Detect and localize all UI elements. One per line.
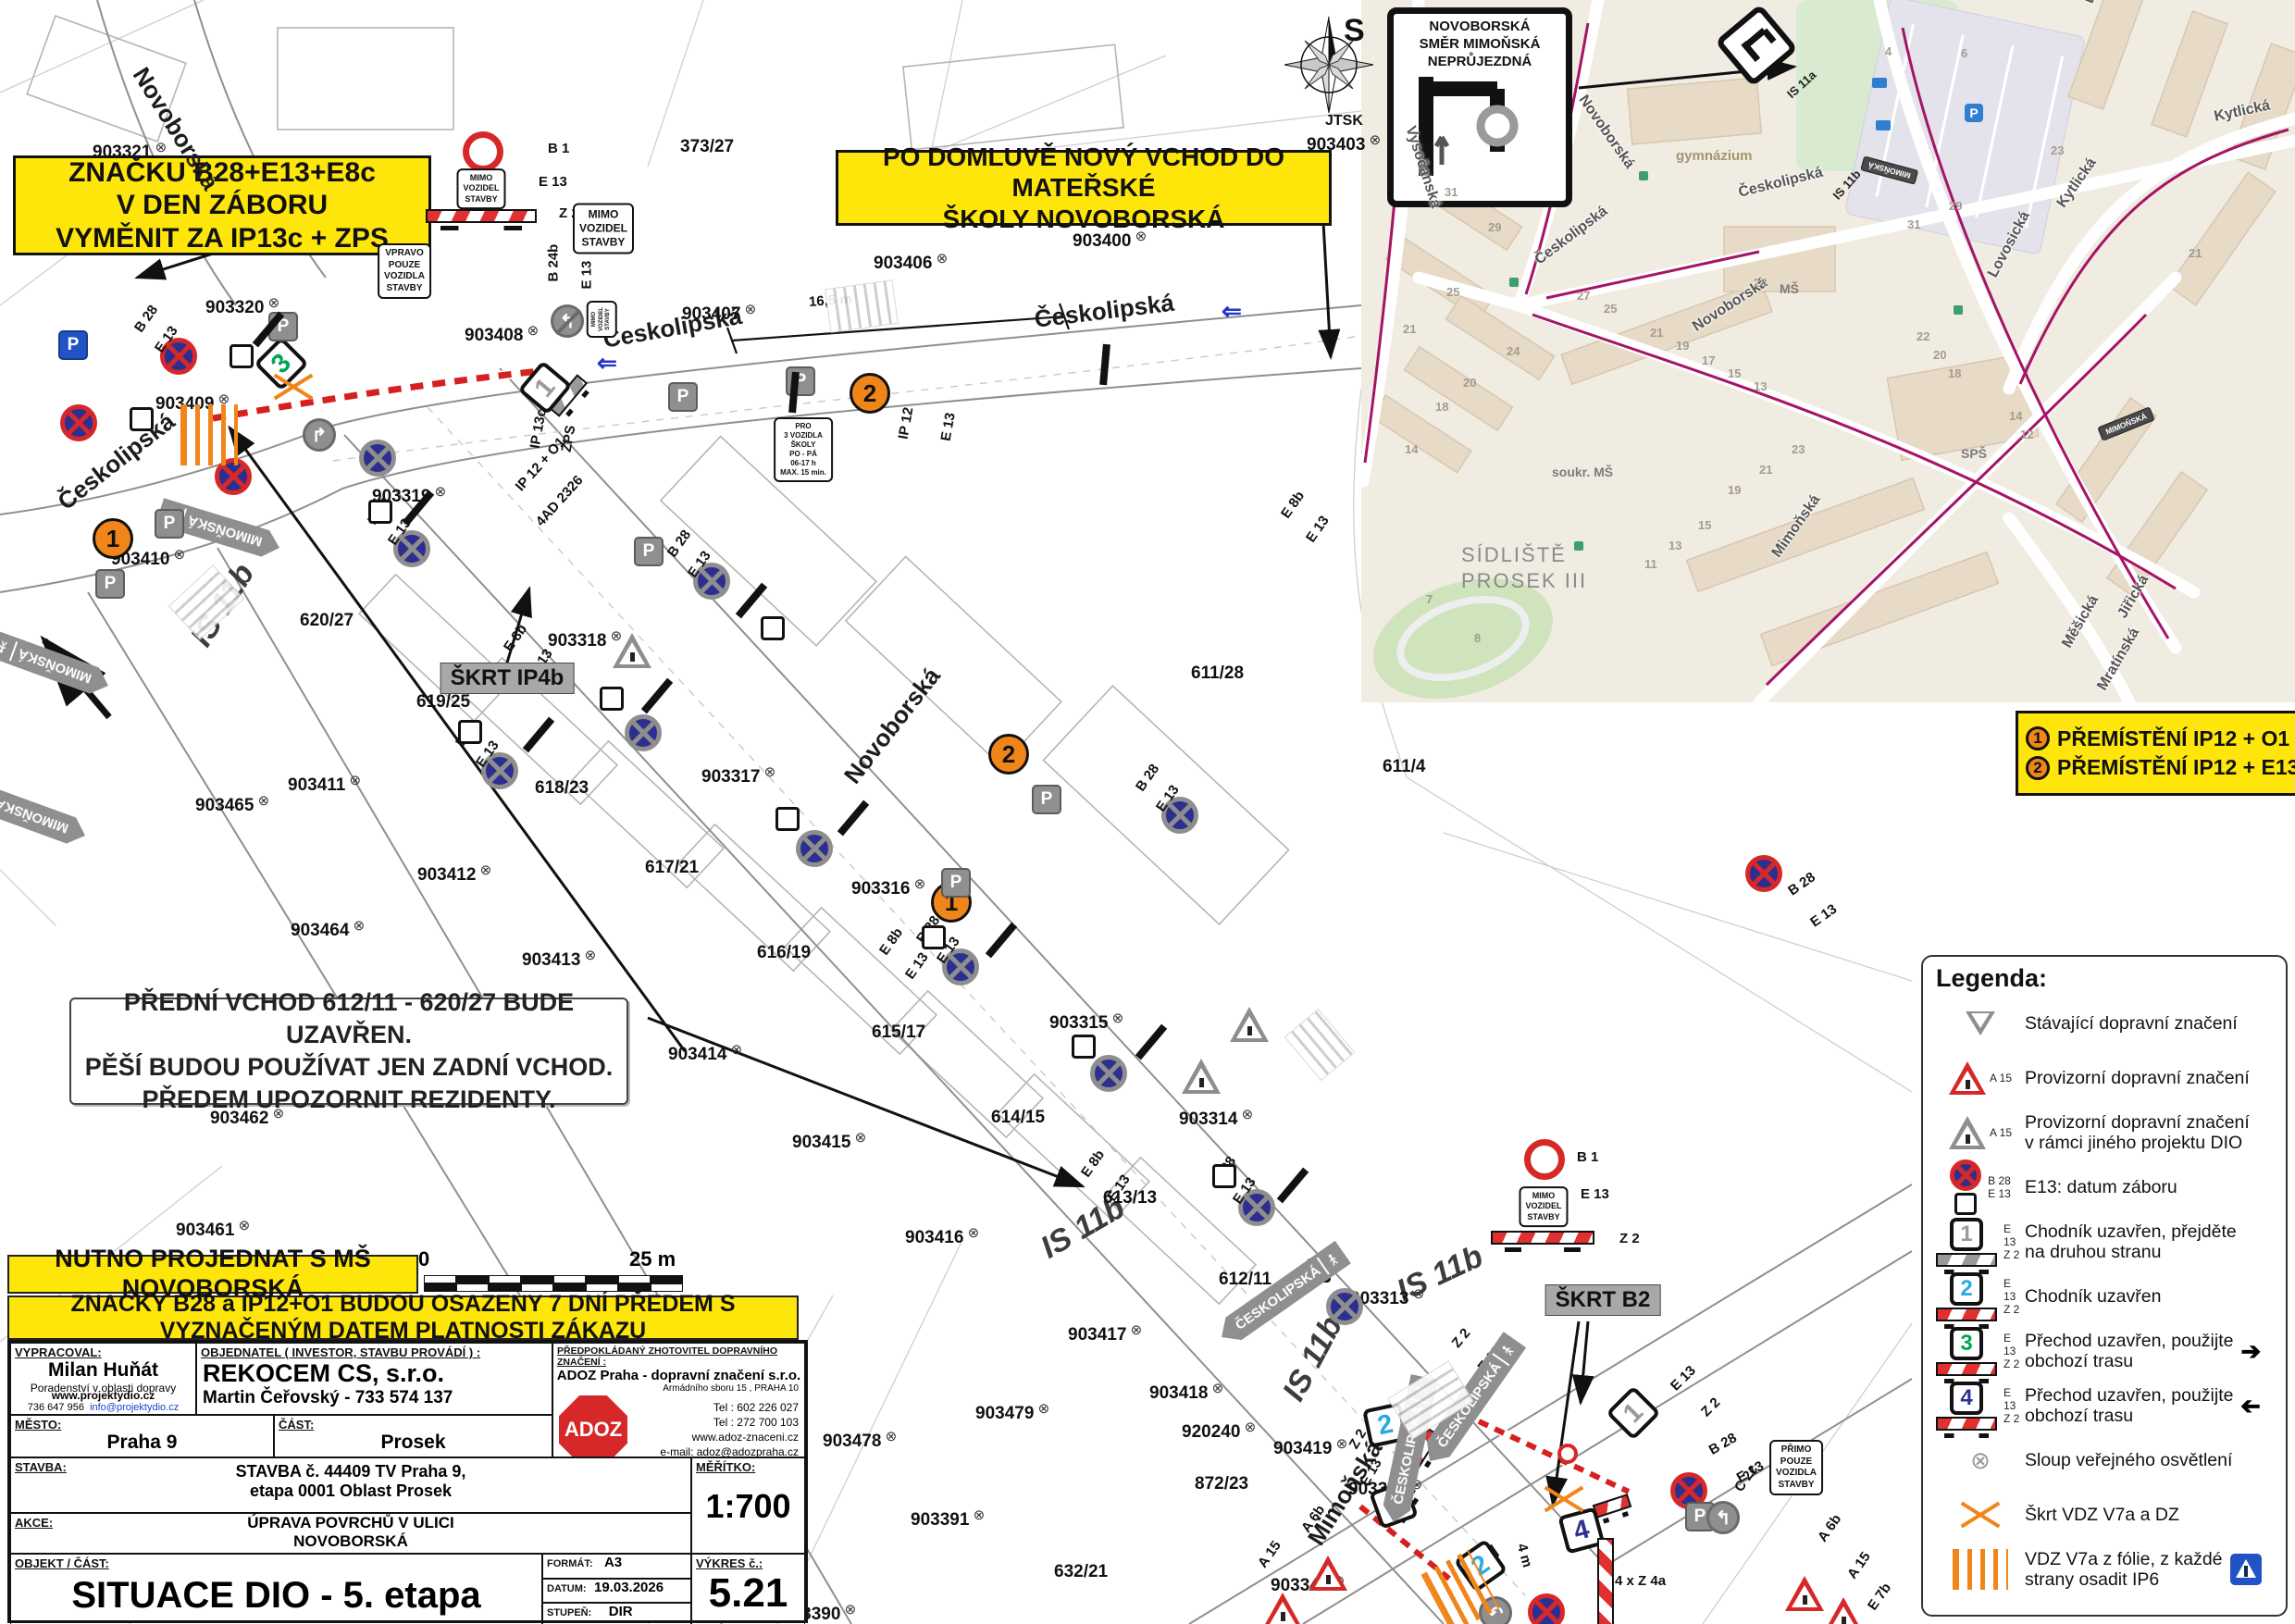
legend-text: Přechod uzavřen, použijte obchozí trasu — [2025, 1331, 2233, 1372]
parking-sign: P — [1032, 785, 1061, 814]
no-stopping-sign — [625, 714, 662, 751]
parcel-label: 903412 ⊗ — [417, 862, 491, 886]
author-label: VYPRACOVAL: — [11, 1344, 195, 1359]
parcel-label: 632/21 — [1054, 1562, 1108, 1582]
sign-code-label: E 13 — [1303, 513, 1333, 545]
legend-text: Chodník uzavřen — [2025, 1286, 2161, 1307]
text-plate-sign: MIMO VOZIDEL STAVBY — [456, 168, 505, 209]
parcel-label: 903411 ⊗ — [288, 772, 361, 796]
v7a-foil-icon — [1936, 1545, 2025, 1593]
sign-code-label: B 1 — [548, 141, 569, 156]
sign-post-bar — [641, 678, 673, 714]
no-stopping-sign — [60, 404, 97, 441]
legend-row: A 15 Provizorní dopravní značení v rámci… — [1936, 1109, 2275, 1157]
parcel-label: 903478 ⊗ — [823, 1428, 897, 1452]
legend-text: Provizorní dopravní značení — [2025, 1068, 2250, 1088]
sign-code-label: B 28 — [1133, 762, 1162, 795]
sign-code-label: B 24b — [546, 244, 562, 282]
street-label: IS 11b — [1276, 1310, 1350, 1407]
no-stopping-sign — [796, 830, 833, 867]
author-email-link[interactable]: info@projektydio.cz — [90, 1402, 179, 1413]
legend-row: 2 E 13 Z 2 Chodník uzavřen — [1936, 1272, 2275, 1320]
parcel-label: 619/25 — [416, 692, 470, 713]
legend-tag: A 15 — [1990, 1072, 2012, 1085]
text-plate-sign: MIMO VOZIDEL STAVBY — [1519, 1186, 1568, 1227]
numbered-point-sign: 1 — [1606, 1385, 1660, 1440]
text-plate-sign: PŘIMO POUZE VOZIDLA STAVBY — [1769, 1440, 1823, 1495]
author-phone-email: 736 647 956 info@projektydio.cz — [10, 1402, 196, 1413]
stage-cell: STUPEŇ: DIR — [542, 1603, 691, 1624]
parcel-label: 903391 ⊗ — [911, 1506, 985, 1531]
z2-barrier — [426, 209, 537, 223]
legend-row: A 15 Provizorní dopravní značení — [1936, 1054, 2275, 1102]
turn-sign: ↰ — [551, 304, 584, 338]
legend-row: VDZ V7a z fólie, z každé strany osadit I… — [1936, 1545, 2275, 1593]
stage-label: STUPEŇ: — [543, 1605, 591, 1618]
parking-sign: P — [58, 330, 88, 360]
sign-code-label: E 13 — [1807, 901, 1840, 931]
action-line2: NOVOBORSKÁ — [11, 1532, 690, 1551]
no-stopping-sign — [359, 440, 396, 477]
legend-tag: Z 2 — [2003, 1412, 2025, 1425]
sign-code-label: E 8b — [1078, 1147, 1108, 1181]
parcel-label: 903419 ⊗ — [1273, 1435, 1347, 1459]
sign-code-label: E 13 — [902, 949, 932, 982]
one-way-arrow: ⇐ — [597, 349, 617, 378]
adoz-logo: ADOZ — [559, 1395, 627, 1457]
parcel-label: 615/17 — [872, 1023, 925, 1043]
sign-code-label: IP 12 — [896, 406, 917, 440]
sign-post-bar — [736, 583, 767, 619]
parcel-label: 903318 ⊗ — [548, 627, 622, 651]
legend-text: E13: datum záboru — [2025, 1177, 2177, 1197]
contractor-cell: PŘEDPOKLÁDANÝ ZHOTOVITEL DOPRAVNÍHO ZNAČ… — [552, 1343, 805, 1457]
sign-code-label: A 6b — [1815, 1511, 1844, 1544]
district-cell: ČÁST: Prosek — [274, 1415, 552, 1457]
sign-code-label: A 15 — [1255, 1538, 1284, 1570]
parcel-label: 920240 ⊗ — [1182, 1419, 1256, 1443]
legend-tag: A 15 — [1990, 1126, 2012, 1139]
sign-code-label: E 7b — [1865, 1581, 1894, 1614]
parcel-label: 903461 ⊗ — [176, 1217, 250, 1241]
route-arrow-right: ➔ — [2240, 1337, 2261, 1366]
sign-code-label: B 28 — [1785, 869, 1818, 899]
action-line1: ÚPRAVA POVRCHŮ V ULICI — [11, 1514, 690, 1532]
text-plate-sign: MIMO VOZIDEL STAVBY — [573, 204, 634, 254]
sidewalk-closed-cross-icon: 1 E 13 Z 2 — [1936, 1218, 2025, 1266]
sign-code-label: Z 2 — [1619, 1231, 1640, 1246]
sign-code-label: 4AD 2326 — [533, 473, 587, 530]
roadworks-warning-sign — [1309, 1556, 1347, 1591]
legend-row: Škrt VDZ V7a a DZ — [1936, 1491, 2275, 1539]
sign-code-label: A 15 — [1844, 1549, 1874, 1581]
route-arrow-left: ➔ — [2240, 1392, 2261, 1420]
sidewalk-closed-icon: 2 E 13 Z 2 — [1936, 1272, 2025, 1320]
date-label: DATUM: — [543, 1581, 587, 1594]
sign-post-bar — [523, 717, 554, 753]
parcel-label: 903413 ⊗ — [522, 947, 596, 971]
legend-text: VDZ V7a z fólie, z každé strany osadit I… — [2025, 1549, 2223, 1591]
sign-post-bar — [837, 800, 869, 837]
contractor-tel1: Tel : 602 226 027 — [633, 1400, 799, 1415]
action-label: AKCE: — [11, 1514, 53, 1530]
sign-code-label: E 13 — [539, 174, 567, 190]
one-way-arrow: ⇐ — [1222, 297, 1242, 326]
sign-code-label: E 8b — [1278, 489, 1308, 522]
parcel-label: 903317 ⊗ — [701, 763, 775, 787]
legend-tag: E 13 — [2003, 1386, 2025, 1412]
relocation-point-badge: 2 — [988, 734, 1029, 775]
parcel-label: 903417 ⊗ — [1068, 1321, 1142, 1345]
legend-row: 4 E 13 Z 2 Přechod uzavřen, použijte obc… — [1936, 1382, 2275, 1430]
parcel-label: 903418 ⊗ — [1149, 1380, 1223, 1404]
contractor-web-link[interactable]: www.adoz-znaceni.cz — [633, 1430, 799, 1444]
format-value: A3 — [604, 1555, 622, 1570]
parcel-label: 872/23 — [1195, 1474, 1248, 1494]
sign-code-label: B 1 — [1577, 1149, 1598, 1165]
existing-sign-icon — [1936, 999, 2025, 1048]
roadworks-warning-sign — [1824, 1597, 1863, 1624]
parcel-label: 903414 ⊗ — [668, 1041, 742, 1065]
contractor-tel2: Tel : 272 700 103 — [633, 1415, 799, 1430]
sign-code-label: 4 x Z 4a — [1615, 1573, 1666, 1589]
relocation-point-badge: 1 — [93, 518, 133, 559]
contractor-contacts: Tel : 602 226 027 Tel : 272 700 103 www.… — [633, 1400, 799, 1457]
street-direction-sign: MIMOŇSKÁ — [0, 630, 113, 699]
legend-tag: E 13 — [2003, 1332, 2025, 1357]
parcel-label: 903464 ⊗ — [291, 917, 365, 941]
e13-plate — [922, 925, 946, 949]
drawing-number-cell: VÝKRES č.: 5.21 — [691, 1554, 805, 1624]
parcel-label: 903407 ⊗ — [682, 301, 756, 325]
parcel-label: 903408 ⊗ — [465, 322, 539, 346]
city-cell: MĚSTO: Praha 9 — [10, 1415, 274, 1457]
author-phone: 736 647 956 — [28, 1402, 84, 1413]
z2-barrier — [1593, 1494, 1632, 1519]
sign-code-label: IP 13c — [527, 408, 550, 450]
district-value: Prosek — [275, 1432, 552, 1454]
no-stopping-sign — [1745, 855, 1782, 892]
strike-marking-icon — [1936, 1491, 2025, 1539]
z2-barrier — [1491, 1231, 1594, 1245]
client-name: REKOCEM CS, s.r.o. — [197, 1359, 552, 1388]
e13-plate — [1072, 1035, 1096, 1059]
parcel-label: 903400 ⊗ — [1073, 228, 1147, 252]
parcel-label: 903462 ⊗ — [210, 1105, 284, 1129]
parking-sign: P — [95, 569, 125, 599]
city-label: MĚSTO: — [11, 1416, 273, 1432]
z4b-guide-board — [1597, 1538, 1614, 1624]
sign-code-label: B 28 — [664, 527, 694, 561]
sign-code-label: B 28 — [1706, 1430, 1740, 1458]
drawing-number-value: 5.21 — [692, 1570, 804, 1617]
parking-sign: P — [668, 382, 698, 412]
parcel-label: 903403 ⊗ — [1307, 131, 1381, 155]
legend-text: Provizorní dopravní značení v rámci jiné… — [2025, 1112, 2250, 1154]
temporary-sign-icon: A 15 — [1936, 1054, 2025, 1102]
no-stopping-sign — [1326, 1288, 1363, 1325]
legend-tag: E 13 — [2003, 1222, 2025, 1248]
parcel-label: 612/11 — [1219, 1270, 1272, 1290]
parcel-label: 614/15 — [991, 1108, 1045, 1128]
contractor-address: Armádního sboru 15 , PRAHA 10 — [553, 1383, 804, 1394]
strike-mark — [273, 371, 314, 403]
legend-tag: Z 2 — [2003, 1248, 2025, 1261]
parcel-label: 903416 ⊗ — [905, 1224, 979, 1248]
date-cell: DATUM: 19.03.2026 — [542, 1579, 691, 1603]
parcel-label: 618/23 — [535, 778, 589, 799]
sign-code-label: E 8b — [501, 622, 530, 655]
object-cell: OBJEKT / ČÁST: SITUACE DIO - 5. etapa — [10, 1554, 542, 1624]
sign-post-bar — [1135, 1024, 1167, 1060]
legend-tag: E 13 — [2003, 1277, 2025, 1303]
parcel-label: 903314 ⊗ — [1179, 1106, 1253, 1130]
relocation-point-badge: 2 — [850, 373, 890, 414]
parking-sign: P — [155, 509, 184, 539]
scale-label: MĚŘÍTKO: — [692, 1458, 804, 1474]
roadworks-warning-sign — [1230, 1007, 1269, 1042]
legend-row: B 28 E 13 E13: datum záboru — [1936, 1163, 2275, 1211]
legend-row: Stávající dopravní značení — [1936, 999, 2275, 1048]
legend-tag: E 13 — [1988, 1187, 2011, 1200]
e13-plate — [761, 616, 785, 640]
parcel-label: 903406 ⊗ — [874, 250, 948, 274]
sign-code-label: 4 m — [1514, 1542, 1535, 1568]
street-label: Novoborská — [838, 663, 947, 789]
no-stopping-sign — [1090, 1055, 1127, 1092]
client-cell: OBJEDNATEL ( INVESTOR, STAVBU PROVÁDÍ ) … — [196, 1343, 552, 1415]
object-value: SITUACE DIO - 5. etapa — [11, 1575, 541, 1617]
format-cell: FORMÁT: A3 — [542, 1554, 691, 1579]
scale-value: 1:700 — [692, 1487, 804, 1526]
sign-code-label: Z 2 — [1698, 1395, 1723, 1419]
no-entry-sign — [463, 131, 503, 172]
e13-plate — [130, 407, 154, 431]
e13-plate — [229, 344, 254, 368]
e13-plate — [368, 500, 392, 524]
sign-code-label: B 28 — [131, 303, 161, 336]
legend-title: Legenda: — [1936, 964, 2275, 993]
parcel-label: 903321 ⊗ — [93, 139, 167, 163]
legend-tag: Z 2 — [2003, 1357, 2025, 1370]
v7a-foil-crossing — [180, 404, 238, 465]
strike-mark — [1544, 1483, 1584, 1515]
sign-code-label: E 13 — [1668, 1363, 1699, 1395]
e13-plate — [775, 807, 800, 831]
action-cell: AKCE: ÚPRAVA POVRCHŮ V ULICI NOVOBORSKÁ — [10, 1513, 691, 1554]
object-label: OBJEKT / ČÁST: — [11, 1555, 109, 1570]
zebra-crossing — [1284, 1009, 1356, 1081]
sign-post-bar — [986, 923, 1017, 959]
no-stopping-sign — [1528, 1593, 1565, 1624]
format-label: FORMÁT: — [543, 1556, 593, 1569]
scale-cell: MĚŘÍTKO: 1:700 — [691, 1457, 805, 1554]
parcel-label: 903415 ⊗ — [792, 1129, 866, 1153]
sign-code-label: E 13 — [1581, 1186, 1609, 1202]
parcel-label: 617/21 — [645, 858, 699, 878]
stage-value: DIR — [609, 1604, 633, 1619]
text-plate-sign: VPRAVO POUZE VOZIDLA STAVBY — [378, 243, 431, 299]
date-value: 19.03.2026 — [594, 1580, 664, 1595]
sign-code-label: Z 2 — [1448, 1325, 1473, 1351]
parcel-label: 611/28 — [1191, 663, 1244, 684]
strike-instruction-box: ŠKRT IP4b — [440, 663, 575, 694]
e13-plate — [1212, 1164, 1236, 1188]
legend-tag: B 28 — [1988, 1174, 2011, 1187]
roadworks-warning-sign — [1263, 1593, 1302, 1624]
title-block: VYPRACOVAL: Milan Huňát Poradenství v ob… — [7, 1340, 808, 1623]
street-label: Novoborská — [127, 62, 225, 195]
contractor-email-link[interactable]: e-mail: adoz@adozpraha.cz — [633, 1444, 799, 1457]
strike-instruction-box: ŠKRT B2 — [1545, 1284, 1661, 1316]
legend-text: Škrt VDZ V7a a DZ — [2025, 1505, 2179, 1525]
sign-post-bar — [1277, 1168, 1309, 1204]
parcel-label: 616/19 — [757, 943, 811, 963]
parcel-label: 903479 ⊗ — [975, 1400, 1049, 1424]
legend-text: Stávající dopravní značení — [2025, 1013, 2238, 1034]
roadworks-warning-sign — [1182, 1059, 1221, 1094]
client-contact: Martin Čeřovský - 733 574 137 — [197, 1388, 552, 1408]
author-contact: www.projektydio.cz 736 647 956 info@proj… — [10, 1380, 196, 1415]
parcel-label: 903465 ⊗ — [195, 792, 269, 816]
street-label: Českolipská — [1033, 289, 1175, 334]
crossing-closed-left-icon: 4 E 13 Z 2 — [1936, 1382, 2025, 1430]
legend-text: Chodník uzavřen, přejděte na druhou stra… — [2025, 1221, 2237, 1263]
client-label: OBJEDNATEL ( INVESTOR, STAVBU PROVÁDÍ ) … — [197, 1344, 552, 1359]
author-name: Milan Huňát — [11, 1359, 195, 1382]
parcel-label: 611/4 — [1383, 757, 1426, 777]
sign-code-label: E 13 — [938, 412, 959, 442]
construction-line2: etapa 0001 Oblast Prosek — [11, 1481, 690, 1501]
text-plate-sign: MIMO VOZIDEL STAVBY — [587, 301, 617, 338]
legend-tag: Z 2 — [2003, 1303, 2025, 1316]
streetlight-icon: ⊗ — [1936, 1436, 2025, 1484]
b28-e13-icon: B 28 E 13 — [1936, 1163, 2025, 1211]
legend-row: 3 E 13 Z 2 Přechod uzavřen, použijte obc… — [1936, 1327, 2275, 1375]
sign-code-label: E 13 — [579, 261, 595, 290]
author-web: www.projektydio.cz — [10, 1389, 196, 1402]
street-direction-sign: MIMOŇSKÁ — [0, 780, 90, 849]
crossing-closed-right-icon: 3 E 13 Z 2 — [1936, 1327, 2025, 1375]
legend-text: Přechod uzavřen, použijte obchozí trasu — [2025, 1385, 2233, 1427]
parking-sign: P — [941, 868, 971, 898]
no-entry-small — [1557, 1444, 1578, 1464]
parcel-label: 373/27 — [680, 137, 734, 157]
city-value: Praha 9 — [11, 1432, 273, 1454]
roadworks-warning-sign — [613, 633, 651, 668]
legend-text: Sloup veřejného osvětlení — [2025, 1450, 2232, 1470]
ip6-crossing-sign-icon — [2230, 1554, 2262, 1585]
construction-cell: STAVBA: STAVBA č. 44409 TV Praha 9, etap… — [10, 1457, 691, 1513]
drawing-number-label: VÝKRES č.: — [692, 1555, 804, 1570]
contractor-name: ADOZ Praha - dopravní značení s.r.o. — [553, 1368, 804, 1383]
sign-code-label: E 8b — [876, 925, 906, 959]
dio-situation-drawing: NOVOBORSKÁSMĚR MIMOŇSKÁNEPRŮJEZDNÁ P Nov… — [0, 0, 2295, 1624]
text-plate-sign: PRO 3 VOZIDLA ŠKOLY PO - PÁ 06-17 h MAX.… — [774, 417, 833, 482]
construction-line1: STAVBA č. 44409 TV Praha 9, — [11, 1462, 690, 1481]
no-entry-sign — [1524, 1139, 1565, 1180]
legend: Legenda: Stávající dopravní značení A 15… — [1921, 955, 2288, 1617]
legend-row: 1 E 13 Z 2 Chodník uzavřen, přejděte na … — [1936, 1218, 2275, 1266]
zebra-crossing — [825, 279, 899, 333]
e13-plate — [458, 720, 482, 744]
turn-sign: ↰ — [1706, 1501, 1740, 1534]
sign-post-bar — [1099, 344, 1110, 386]
parcel-label: 903316 ⊗ — [851, 875, 925, 899]
parcel-label: 903315 ⊗ — [1049, 1010, 1123, 1034]
other-project-sign-icon: A 15 — [1936, 1109, 2025, 1157]
parking-sign: P — [634, 537, 664, 566]
contractor-label: PŘEDPOKLÁDANÝ ZHOTOVITEL DOPRAVNÍHO ZNAČ… — [553, 1344, 804, 1368]
turn-sign: ↱ — [303, 418, 336, 452]
district-label: ČÁST: — [275, 1416, 552, 1432]
legend-row: ⊗ Sloup veřejného osvětlení — [1936, 1436, 2275, 1484]
construction-label: STAVBA: — [11, 1458, 67, 1474]
e13-plate — [600, 687, 624, 711]
roadworks-warning-sign — [1785, 1576, 1824, 1611]
parcel-label: 620/27 — [300, 611, 354, 631]
